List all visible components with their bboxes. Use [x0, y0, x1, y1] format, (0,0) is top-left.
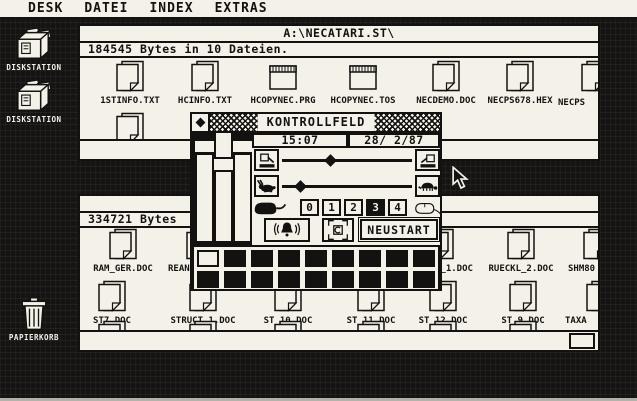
bell-toggle-button[interactable]: [264, 218, 310, 242]
file-label: HCOPYNEC.TOS: [327, 96, 399, 106]
file-label: RUECKL_2.DOC: [485, 264, 557, 274]
mouse-cursor-arrow-icon: [452, 166, 470, 191]
palette-cell[interactable]: [305, 250, 327, 267]
floppy-drive-icon: [12, 78, 56, 114]
palette-cell-selected[interactable]: [197, 250, 219, 267]
rgb-slider-3-track[interactable]: [235, 155, 250, 241]
palette-cell[interactable]: [413, 250, 435, 267]
key-press-loud-icon: [415, 149, 440, 171]
palette-cell[interactable]: [413, 271, 435, 288]
date-field[interactable]: 28/ 2/87: [348, 133, 440, 148]
rgb-slider-2-track[interactable]: [216, 133, 231, 157]
menu-extras[interactable]: EXTRAS: [215, 1, 268, 16]
file-label: 1STINFO.TXT: [94, 96, 166, 106]
window2-bottom-strip[interactable]: [80, 330, 598, 350]
palette-cell[interactable]: [251, 250, 273, 267]
control-panel-titlebar[interactable]: KONTROLLFELD: [192, 114, 440, 133]
application-icon: [348, 60, 378, 94]
desktop-icon-drive-a[interactable]: DISKSTATION: [2, 26, 66, 72]
double-click-2[interactable]: 2: [344, 199, 363, 216]
drive-a-label: DISKSTATION: [2, 63, 66, 72]
file-label-partial[interactable]: REAN: [168, 264, 190, 274]
key-press-soft-icon: [254, 149, 279, 171]
drive-b-label: DISKSTATION: [2, 115, 66, 124]
file-hcinfo[interactable]: HCINFO.TXT: [169, 60, 241, 106]
window2-resize-box[interactable]: [569, 333, 595, 349]
document-icon[interactable]: [585, 280, 598, 314]
time-field[interactable]: 15:07: [252, 133, 348, 148]
palette-cell[interactable]: [278, 250, 300, 267]
document-icon: [108, 228, 138, 262]
file-label: HCOPYNEC.PRG: [247, 96, 319, 106]
file-label-clipped[interactable]: SHM80: [568, 264, 595, 274]
desktop-icon-drive-b[interactable]: DISKSTATION: [2, 78, 66, 124]
document-icon[interactable]: [580, 60, 598, 94]
file-ram-ger[interactable]: RAM_GER.DOC: [87, 228, 159, 274]
turtle-icon: [415, 175, 440, 197]
document-icon-partial[interactable]: [356, 320, 386, 330]
document-icon-partial[interactable]: [273, 320, 303, 330]
window1-titlebar[interactable]: A:\NECATARI.ST\: [80, 26, 598, 43]
document-icon-partial[interactable]: [428, 320, 458, 330]
document-icon-partial[interactable]: [97, 320, 127, 330]
rgb-slider-1-track[interactable]: [197, 155, 212, 241]
menu-datei[interactable]: DATEI: [84, 1, 128, 16]
palette-cell[interactable]: [359, 271, 381, 288]
document-icon: [505, 60, 535, 94]
center-toggle-button[interactable]: [322, 218, 354, 242]
menu-index[interactable]: INDEX: [149, 1, 193, 16]
palette-cell[interactable]: [332, 271, 354, 288]
document-icon: [508, 280, 538, 314]
palette-cell[interactable]: [224, 250, 246, 267]
document-icon-partial[interactable]: [115, 112, 145, 139]
control-panel-title: KONTROLLFELD: [258, 114, 375, 131]
file-necps678[interactable]: NECPS678.HEX: [484, 60, 556, 106]
document-icon: [190, 60, 220, 94]
keyclick-slider-row: [252, 149, 440, 173]
palette-cell[interactable]: [332, 250, 354, 267]
rgb-slider-panel: [192, 133, 252, 245]
palette-cell[interactable]: [251, 271, 273, 288]
double-click-0[interactable]: 0: [300, 199, 319, 216]
palette-cell[interactable]: [305, 271, 327, 288]
mouse-black-icon: [252, 199, 288, 217]
rgb-slider-1-handle[interactable]: [195, 141, 214, 152]
palette-cell[interactable]: [224, 271, 246, 288]
rgb-slider-2-handle[interactable]: [214, 159, 233, 170]
window1-info: 184545 Bytes in 10 Dateien.: [80, 43, 598, 58]
menu-bar: DESK DATEI INDEX EXTRAS: [0, 0, 637, 19]
menu-desk[interactable]: DESK: [28, 1, 63, 16]
trash-label: PAPIERKORB: [4, 333, 64, 342]
file-label-clipped[interactable]: NECPS: [558, 98, 585, 108]
keyclick-slider-track[interactable]: [282, 159, 412, 162]
file-necdemo[interactable]: NECDEMO.DOC: [410, 60, 482, 106]
trash-icon: [16, 296, 52, 332]
palette-cell[interactable]: [386, 250, 408, 267]
file-label: NECDEMO.DOC: [410, 96, 482, 106]
rabbit-icon: [254, 175, 279, 197]
file-hcopynec-prg[interactable]: HCOPYNEC.PRG: [247, 60, 319, 106]
rgb-slider-2-track-lower[interactable]: [216, 172, 231, 241]
file-label: RAM_GER.DOC: [87, 264, 159, 274]
palette-cell[interactable]: [197, 271, 219, 288]
restart-button[interactable]: NEUSTART: [360, 219, 438, 240]
repeat-slider-handle[interactable]: [294, 180, 307, 193]
keyclick-slider-handle[interactable]: [324, 154, 337, 167]
document-icon: [97, 280, 127, 314]
control-panel-dialog: KONTROLLFELD 15:07 28/ 2/87: [190, 112, 442, 291]
file-1stinfo[interactable]: 1STINFO.TXT: [94, 60, 166, 106]
palette-cell[interactable]: [278, 271, 300, 288]
application-icon: [268, 60, 298, 94]
document-icon: [431, 60, 461, 94]
desktop-screen: DESK DATEI INDEX EXTRAS DISKSTATION DISK…: [0, 0, 637, 401]
c-box-arrows-icon: [327, 219, 349, 241]
file-hcopynec-tos[interactable]: HCOPYNEC.TOS: [327, 60, 399, 106]
repeat-slider-row: [252, 175, 440, 199]
file-rueckl2[interactable]: RUECKL_2.DOC: [485, 228, 557, 274]
palette-cell[interactable]: [359, 250, 381, 267]
double-click-3-selected[interactable]: 3: [366, 199, 385, 216]
file-label: NECPS678.HEX: [484, 96, 556, 106]
close-box-icon[interactable]: [192, 114, 210, 131]
rgb-slider-3-handle[interactable]: [233, 141, 252, 152]
mouse-outline-icon: [412, 199, 442, 217]
double-click-4[interactable]: 4: [388, 199, 407, 216]
double-click-row: 0 1 2 3 4: [252, 199, 440, 217]
bell-sound-icon: [272, 220, 302, 240]
palette-cell[interactable]: [386, 271, 408, 288]
document-icon-partial[interactable]: [508, 320, 538, 330]
document-icon: [115, 60, 145, 94]
color-palette: [192, 245, 440, 291]
file-label: HCINFO.TXT: [169, 96, 241, 106]
floppy-drive-icon: [12, 26, 56, 62]
double-click-1[interactable]: 1: [322, 199, 341, 216]
document-icon: [506, 228, 536, 262]
desktop-icon-trash[interactable]: PAPIERKORB: [4, 296, 64, 342]
file-label-clipped[interactable]: TAXA: [565, 316, 587, 326]
document-icon-partial[interactable]: [188, 320, 218, 330]
document-icon[interactable]: [582, 228, 598, 262]
